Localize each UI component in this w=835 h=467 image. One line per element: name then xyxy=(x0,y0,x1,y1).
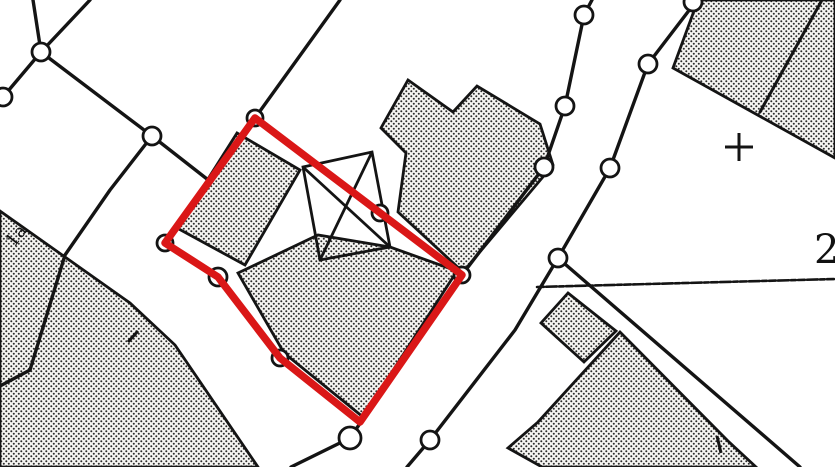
boundary-marker xyxy=(601,159,619,177)
boundary-marker xyxy=(143,127,161,145)
boundary-marker xyxy=(421,431,439,449)
building-top-right xyxy=(673,0,835,158)
boundary-marker xyxy=(639,55,657,73)
map-label-2: 2 xyxy=(814,227,835,273)
boundary-marker xyxy=(339,427,361,449)
building-main-north xyxy=(381,80,553,272)
boundary-marker xyxy=(0,88,12,106)
boundary-marker xyxy=(575,6,593,24)
map-viewport: 1a2 xyxy=(0,0,835,467)
boundary-marker xyxy=(684,0,702,11)
boundary-line xyxy=(41,0,90,52)
boundary-marker xyxy=(535,158,553,176)
boundary-marker xyxy=(549,249,567,267)
boundary-marker xyxy=(556,97,574,115)
boundary-line xyxy=(41,52,207,179)
boundary-marker xyxy=(32,43,50,61)
boundary-line xyxy=(255,0,340,118)
cadastral-map: 1a2 xyxy=(0,0,835,467)
